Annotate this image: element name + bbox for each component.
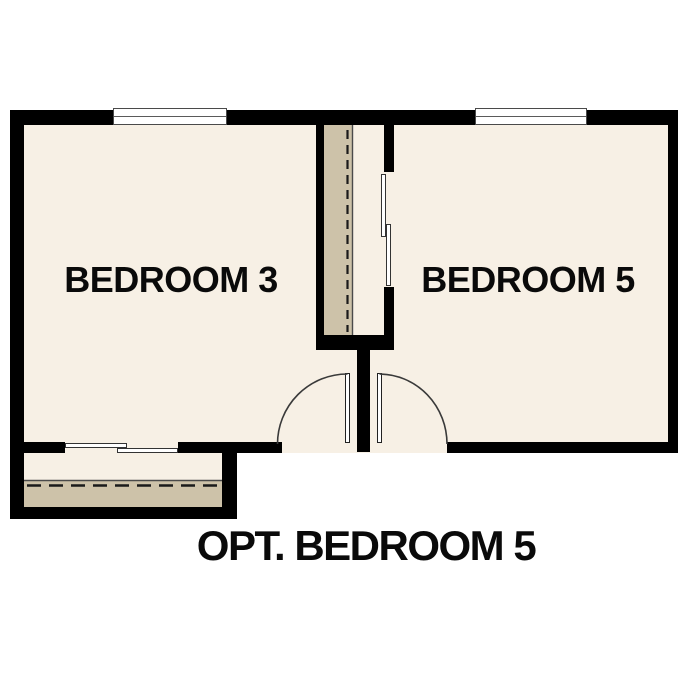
closet-right-wall-lower	[384, 287, 394, 335]
extension-bottom-wall	[10, 507, 237, 519]
center-closet-shelf-area	[324, 125, 353, 335]
closet-right-wall-upper	[384, 125, 394, 172]
closet-bottom-wall	[316, 335, 394, 350]
window-icon	[475, 108, 587, 125]
extension-closet-shelf-area	[24, 481, 222, 507]
window-mullion-line	[476, 116, 586, 117]
bypass-closet-door-icon	[386, 224, 391, 286]
door-leaf-right	[377, 373, 382, 443]
bedroom3-bottom-wall-right-segment	[178, 442, 282, 453]
door-leaf-left	[345, 373, 350, 443]
center-door-stub-wall	[357, 350, 370, 452]
closet-left-wall	[316, 125, 324, 335]
bedroom3-bottom-wall-left-segment	[10, 442, 65, 453]
right-exterior-wall	[668, 110, 678, 453]
left-exterior-wall	[10, 110, 24, 519]
floor-plan: BEDROOM 3 BEDROOM 5 OPT. BEDROOM 5	[0, 0, 687, 687]
bypass-closet-door-icon	[117, 448, 178, 454]
window-mullion-line	[114, 116, 226, 117]
room-label-bedroom-3: BEDROOM 3	[64, 259, 278, 301]
plan-caption: OPT. BEDROOM 5	[197, 522, 535, 570]
room-label-bedroom-5: BEDROOM 5	[421, 259, 635, 301]
bedroom5-bottom-wall	[447, 442, 678, 453]
window-icon	[113, 108, 227, 125]
